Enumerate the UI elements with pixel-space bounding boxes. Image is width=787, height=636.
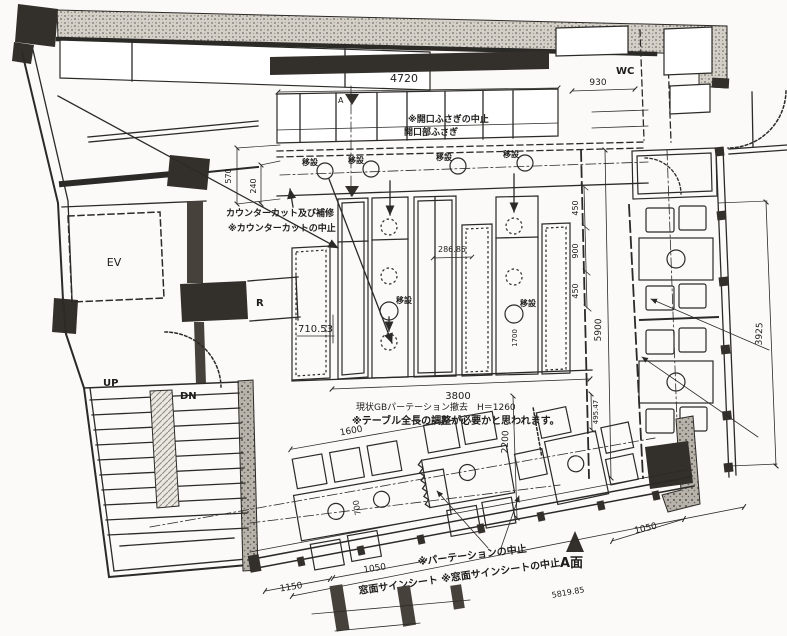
dn-label: DN <box>180 391 197 402</box>
booth-divider <box>640 317 718 320</box>
relocate-centerline <box>280 162 648 175</box>
window-sill-line <box>250 470 686 552</box>
chair <box>679 328 706 352</box>
chair <box>514 449 547 480</box>
dim-5900: 5900 <box>594 318 604 341</box>
table-centerline-1 <box>150 438 655 527</box>
relocate-label-4: 移設 <box>503 149 520 159</box>
relocate-label-2: 移設 <box>348 155 365 165</box>
relocate-label-6: 移設 <box>520 298 537 308</box>
relocate-label-1: 移設 <box>302 157 319 167</box>
units-baseline <box>292 370 592 381</box>
gb-partition-note: 3800 495.47 現状GBパーテーション撤去 H＝1260 ※テーブル全長… <box>332 379 600 430</box>
corridor-column <box>187 201 203 283</box>
window-arrow-2 <box>642 357 758 437</box>
wc-label: WC <box>616 66 634 77</box>
chair <box>292 454 327 489</box>
r-label: R <box>256 298 264 309</box>
note-counter-2: ※カウンターカットの中止 <box>228 222 336 234</box>
elevator: EV <box>68 212 164 302</box>
entry-wall-double <box>88 121 258 142</box>
stair-handrail <box>150 390 179 508</box>
stairs: UP DN R <box>84 298 264 571</box>
table-lamp-circle <box>667 250 685 268</box>
wall-below-r <box>194 322 206 384</box>
unit-5-divider <box>496 237 538 238</box>
table-centerline-2 <box>250 485 560 523</box>
wc-fixture-3 <box>670 84 710 114</box>
door-arc-booth <box>645 158 681 194</box>
window-wall-lines <box>716 148 736 477</box>
dim-28685: 286.85 <box>438 245 466 254</box>
relocated-circle-dashed <box>381 268 397 284</box>
door-arc-right <box>728 91 786 148</box>
window-arrow-1 <box>651 299 769 350</box>
exterior-walls <box>12 4 727 577</box>
exterior-stub <box>450 584 465 609</box>
corridor-wall <box>62 201 206 207</box>
chair <box>646 330 674 354</box>
dim-581985: 5819.85 <box>551 585 585 600</box>
dim-3925-line <box>766 202 776 466</box>
table <box>294 469 452 541</box>
entry-wall-thick <box>62 174 172 184</box>
unit-6-inner <box>546 227 566 370</box>
dim-930-line <box>572 89 635 91</box>
dim-3925: 3925 <box>755 322 766 345</box>
door-jamb-block <box>712 78 730 89</box>
r-room-wall <box>180 281 248 322</box>
dim-3800: 3800 <box>445 391 470 402</box>
a-face-label: A面 <box>560 556 583 571</box>
booth-column <box>629 148 718 478</box>
dim-3800-line <box>332 379 590 389</box>
dim-700: 700 <box>351 499 363 516</box>
unit-2-divider <box>372 239 408 240</box>
unit-0-inner <box>296 250 326 376</box>
unit-5 <box>496 196 538 375</box>
door-arc-hall <box>165 332 221 387</box>
pendant-circle <box>363 161 379 177</box>
dim-5900-line <box>605 150 611 478</box>
left-wall-inner <box>33 50 72 299</box>
left-dims: 570 240 <box>224 145 280 204</box>
existing-partition-dashed <box>581 150 589 478</box>
corner-column-br <box>645 441 693 489</box>
dim-1600: 1600 <box>339 425 364 439</box>
relocate-label-3: 移設 <box>436 152 453 162</box>
chair <box>646 286 674 310</box>
wc-fixture-1 <box>556 26 628 56</box>
relocated-circle-dashed <box>381 219 397 235</box>
section-letter: A <box>338 96 344 105</box>
relocated-circle-dashed <box>506 218 522 234</box>
unit-2 <box>372 197 408 378</box>
dim-570: 570 <box>224 168 233 183</box>
unit-4-inner <box>466 228 488 372</box>
chair <box>679 206 706 230</box>
entry-wall-right <box>208 167 258 172</box>
chair <box>330 447 365 482</box>
pendant-circle <box>517 155 533 171</box>
pendant-circle <box>317 163 333 179</box>
counter-dashed-edge <box>277 142 645 157</box>
unit-1-inner <box>342 202 364 375</box>
partition-stop-arrow-1 <box>437 491 488 548</box>
dim-1050b: 1050 <box>633 522 658 537</box>
chair <box>646 409 674 433</box>
dim-1050a: 1050 <box>363 562 387 576</box>
wc-step-lines <box>592 110 648 128</box>
dim-240: 240 <box>249 178 258 193</box>
note-opening-2: 開口部ふさぎ <box>404 126 458 138</box>
dim-71053: 710.53 <box>298 324 333 335</box>
floor-plan: EV UP DN R WC 930 4720 ※開口ふさぎの中止 開口部ふさぎ … <box>0 0 787 636</box>
chair <box>601 422 634 453</box>
corner-column <box>15 4 58 47</box>
dim-1700: 1700 <box>511 329 519 347</box>
stair-right-wall <box>238 380 258 571</box>
dim-2200-line <box>513 396 517 518</box>
dim-1150: 1150 <box>279 581 303 595</box>
entry-walls <box>62 121 300 387</box>
table-group-c <box>507 395 642 511</box>
note-opening-1: ※開口ふさぎの中止 <box>408 113 489 125</box>
up-label: UP <box>103 378 118 389</box>
wc-fixture-2 <box>664 27 712 75</box>
door-right-leaf <box>729 92 787 154</box>
relocated-circle-dashed <box>506 269 522 285</box>
dim-930: 930 <box>589 78 606 88</box>
dim-450b: 450 <box>571 283 580 298</box>
dim-2200: 2200 <box>501 430 512 454</box>
section-marker-bottom-icon <box>345 186 359 197</box>
wc-area: WC 930 <box>556 26 787 154</box>
table-sawtooth-edge <box>418 460 430 508</box>
relocate-label-5: 移設 <box>396 295 413 305</box>
right-dims: 450 900 450 5900 <box>571 150 611 478</box>
chair <box>679 284 706 308</box>
booth-table <box>639 238 713 280</box>
stair-landing <box>120 538 234 546</box>
chair <box>367 441 402 476</box>
dim-4720: 4720 <box>390 72 418 85</box>
dim-900: 900 <box>571 243 580 258</box>
note-counter-1: カウンターカット及び補修 <box>226 207 335 219</box>
dim-connectors <box>237 145 280 204</box>
pendant-circle <box>450 158 466 174</box>
relocate-row: 移設 移設 移設 移設 <box>277 149 648 215</box>
floor-plan-drawing: EV UP DN R WC 930 4720 ※開口ふさぎの中止 開口部ふさぎ … <box>0 0 787 636</box>
table-lamp-circle <box>566 454 585 473</box>
dim-450a: 450 <box>571 200 580 215</box>
exterior-stub <box>329 584 349 631</box>
ev-label: EV <box>107 256 122 269</box>
entry-column <box>167 155 210 190</box>
dim-49547: 495.47 <box>592 400 600 425</box>
counter-cut-arrow <box>290 189 293 207</box>
